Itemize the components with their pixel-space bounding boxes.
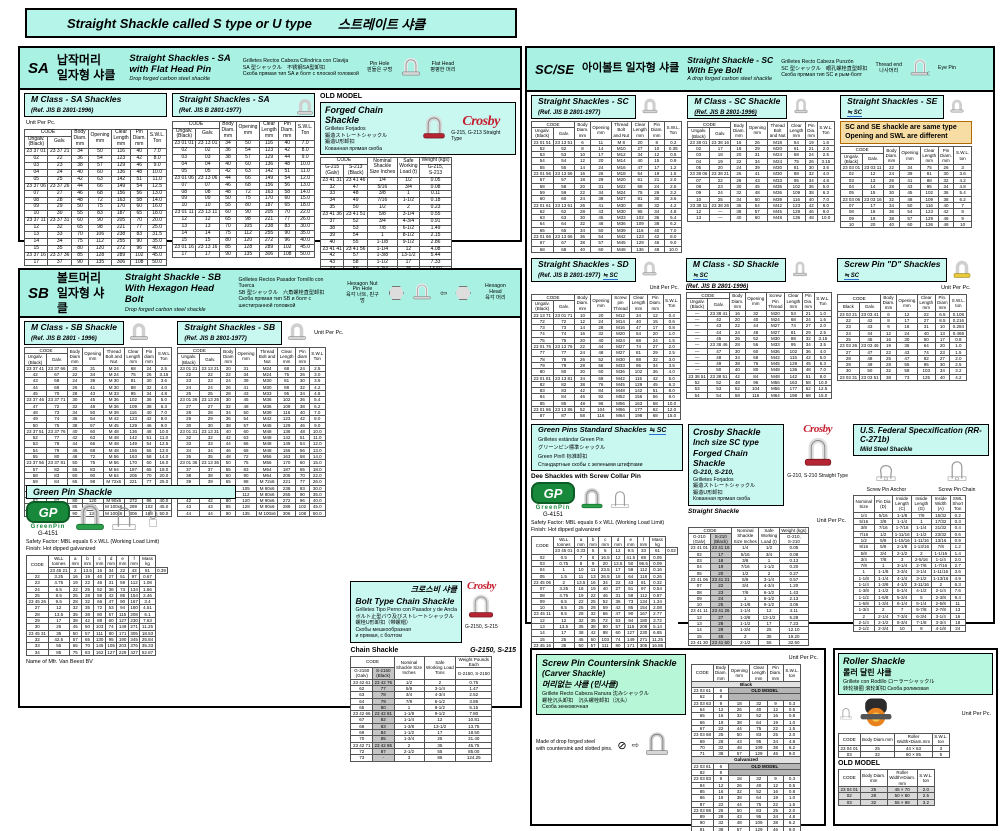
sa-mclass-column: M Class - SA Shackles(Ref. JIS B 2801-19… <box>24 93 167 266</box>
sd-column: Straight Shackles - SD(Ref. JIS B 2801-1… <box>531 258 681 420</box>
green-pin-safety-text: Safety Factor: MBL equals 6 x WLL (Worki… <box>26 539 236 553</box>
sb-unit-label: Unit Per Pc. <box>314 330 343 336</box>
roller-shackle-photo-icon <box>859 697 893 731</box>
sb-hexnut-label: Hexagon Nut Pin Hole 육각 너트, 핀구멍 <box>344 282 380 305</box>
page-banner: Straight Shackle called S type or U type… <box>25 8 517 38</box>
green-pins-column: Green Pins Standard Shackles ≒ SCGrillet… <box>531 424 683 671</box>
sa-forged-caption: G-215, G-213 Straight Type <box>451 130 511 142</box>
screw-d-table: CODEBody Diam. mmOpening mmClear Length … <box>837 294 972 381</box>
se-table: CODEBody Diam. mmOpening mmClear Length … <box>840 146 972 228</box>
roller-old-table: CODEBody Diam. mmRoller Width×Diam. mmS.… <box>838 769 993 806</box>
fed-titlebox: U.S. Federal Specxification (RR-C-271b)M… <box>853 424 989 456</box>
fed-column: U.S. Federal Specxification (RR-C-271b)M… <box>853 424 989 633</box>
sb-straight-titlebox: Straight Shackles - SB(Ref. JIS B 2801-1… <box>177 321 282 345</box>
screw-d-titlebox: Screw Pin "D" Shackles≒ SC <box>837 258 947 282</box>
sd-shackle-icon <box>641 259 658 280</box>
fed-cap2: Screw Pin Chain <box>938 487 975 493</box>
hexagon-nut-icon <box>389 286 404 300</box>
roller-old-label: OLD MODEL <box>838 760 993 767</box>
sc-thread-label: Thread end 나사머리 <box>876 63 903 74</box>
hexagon-head-icon <box>455 286 470 300</box>
anchor-shackle-drawing-icon <box>873 458 899 486</box>
fed-cap1: Screw Pin Anchor <box>867 487 906 493</box>
countersink-titlebox: Screw Pin Countersink Shackle (Carver Sh… <box>536 654 686 715</box>
roller-shackle-small-icon <box>838 705 854 723</box>
green-pin-shackle-titlebox: Green Pin Shackle <box>26 485 236 499</box>
sa-unit-label: Unit Per Pc. <box>26 120 165 126</box>
sb-header-band: SB 볼트머리 일자형 샤클 Straight Shackle - SB Wit… <box>20 270 520 318</box>
chain-shackle-code: G-2150, S-215 <box>470 647 516 654</box>
green-pin-table: CODEWLL tonnesa mmb mmc mmd mme mmf mmMa… <box>26 555 236 656</box>
sd-titlebox: Straight Shackles - SD(Ref. JIS B 2801-1… <box>531 258 636 282</box>
sb-multilang: Grilletes Rectos Pasador Tornillo con Tu… <box>238 277 336 310</box>
sa-shackle-icon <box>400 55 422 81</box>
screw-d-shackle-icon <box>952 258 972 282</box>
bolt-type-column: 크로스비 샤클 Bolt Type Chain Shackle Grillete… <box>350 321 516 762</box>
sa-flathead-label: Flat Head 평평한 머리 <box>430 62 455 73</box>
countersink-table: CODEBody Diam. mmOpening mmClear Length … <box>691 664 820 831</box>
sa-mclass-table: CODEBody Diam. mmOpening mmClear Length … <box>24 129 167 267</box>
sd-mclass-ref: (Ref. JIS B 2801-1996) <box>686 284 832 290</box>
g210-table: CODENominal Shackle Size InchesSafe Work… <box>688 527 848 647</box>
roller-titlebox: Roller Shackle 롤러 달린 샤클 Grillete con Rod… <box>838 653 993 695</box>
sb-panel: SB 볼트머리 일자형 샤클 Straight Shackle - SB Wit… <box>18 268 522 708</box>
sa-title-ko: 납작머리 일자형 샤클 <box>57 53 116 83</box>
sc-panel: SC/SE 아이볼트 일자형 샤클 Straight Shackle - SC … <box>525 46 995 624</box>
sb-shackle-icon <box>412 281 432 305</box>
g210-unit: Unit Per Pc. <box>817 518 846 524</box>
sd-mclass-table: CODEBody Diam. mmOpening mmScrew Pin Thr… <box>686 292 832 399</box>
green-pin-logo-2: GP <box>26 501 70 523</box>
countersink-table-column: Unit Per Pc. CODEBody Diam. mmOpening mm… <box>691 654 820 831</box>
sc-mclass-table: CODEBody Diam. mmOpening mmThread Bolt a… <box>687 121 835 222</box>
sb-hexhead-label: Hexagon Head 육각 머리 <box>479 284 512 301</box>
sb-title-ko: 볼트머리 일자형 샤클 <box>57 271 113 316</box>
sc-title-ko: 아이볼트 일자형 샤클 <box>582 62 679 76</box>
sc-title-en: Straight Shackle - SC With Eye Bolt <box>687 56 773 76</box>
sb-mclass-titlebox: M Class - SB Shackle(Ref. JIS B 2801 - 1… <box>24 321 124 345</box>
sa-header-band: SA 납작머리 일자형 샤클 Straight Shackles - SA wi… <box>20 48 520 90</box>
crosby-logo: Crosby <box>462 115 499 129</box>
sd-unit-label: Unit Per Pc. <box>533 285 679 291</box>
sd-mclass-column: M Class - SD Shackle≒ SC (Ref. JIS B 280… <box>686 258 832 399</box>
sc-straight-table: CODEBody Diam. mmOpening mmThread Bolt a… <box>531 121 682 253</box>
roller-panel: Roller Shackle 롤러 달린 샤클 Grillete con Rod… <box>833 648 998 826</box>
no-head-icon: ⊘ <box>617 739 626 752</box>
se-shackle-icon <box>949 97 965 117</box>
crosby-logo-2: Crosby <box>803 424 832 435</box>
sc-code: SC/SE <box>535 62 574 77</box>
sa-forged-titlebox: Forged Chain Shackle Grilletes Forjados … <box>320 102 516 155</box>
se-titlebox: Straight Shackles - SE≒ SC <box>840 95 944 119</box>
sa-forged-table: CODENominal Shackle Size InchesSafe Work… <box>320 157 516 281</box>
sb-title-en: Straight Shackle - SB With Hexagon Head … <box>125 273 231 306</box>
sc-straight-column: Straight Shackles - SC(Ref. JIS B 2801-1… <box>531 95 682 253</box>
dee-shackles-label: Dee Shackles with Screw Collar Pin <box>531 473 683 480</box>
green-pins-titlebox: Green Pins Standard Shackles ≒ SCGrillet… <box>531 424 683 472</box>
sd-table: CODEBody Diam. mmOpening mmScrew pin Thr… <box>531 294 681 420</box>
crosby-titlebox: Crosby Shackle Inch size SC type Forged … <box>688 424 784 506</box>
dee-drawing-icon <box>609 486 631 514</box>
chain-shackle-drawing-icon <box>945 458 969 486</box>
sa-straight-column: Straight Shackles - SA(Ref. JIS B 2801-1… <box>172 93 315 258</box>
crosby-logo-3: Crosby <box>467 581 496 592</box>
sc-multilang: Grilletes Recto Cabeza Punzón SC 型シャックル … <box>781 59 867 79</box>
screw-d-unit-label: Unit Per Pc. <box>839 285 970 291</box>
green-pin-shackle-icon <box>580 486 604 514</box>
banner-title-ko: 스트레이트 샤클 <box>338 14 425 33</box>
chain-shackle-table: CODENominal Shackle Size InchesSafe Work… <box>350 656 516 762</box>
green-pin-mfr: Name of Mfr. Van Beest BV <box>26 659 236 665</box>
countersink-panel: Screw Pin Countersink Shackle (Carver Sh… <box>530 648 826 826</box>
shackle-drawing-front-icon <box>110 501 138 537</box>
straight-shackle-title: Straight Shackle <box>688 508 848 515</box>
crosby-column: Crosby Shackle Inch size SC type Forged … <box>688 424 848 665</box>
green-pin-shackle-icon-2 <box>75 501 105 537</box>
crosby-shackle-icon <box>803 436 833 472</box>
sa-straight-table: CODEBody Diam. mmOpening mmClear Length … <box>172 121 315 259</box>
g4151-label: G-4151 <box>543 512 563 518</box>
screw-d-column: Screw Pin "D" Shackles≒ SC Unit Per Pc. … <box>837 258 972 381</box>
roller-unit: Unit Per Pc. <box>900 711 991 717</box>
fed-table: Nominal SizePin Dia (D)Inside Length (C)… <box>853 495 989 633</box>
green-pin-shackle-block: Green Pin Shackle GP GreenPin G-4151 Saf… <box>26 485 236 665</box>
sa-subtitle: Drop forged carbon steel shackle <box>129 76 230 82</box>
se-note-box: SC and SE shackle are same type Opening … <box>840 121 972 145</box>
chain-shackle-title: Chain Shackle <box>350 647 398 654</box>
sb-code: SB <box>28 285 49 302</box>
countersink-shackle-icon <box>644 731 670 761</box>
countersink-note: Made of drop forged steel with countersi… <box>536 739 612 752</box>
sa-code: SA <box>28 60 49 77</box>
sc-mclass-shackle-icon <box>792 95 810 119</box>
sa-straight-shackle-icon <box>295 97 315 119</box>
arrow-icon-2: ⇨ <box>632 740 640 751</box>
sa-multilang: Grilletes Rectos Cabeza Cilindrica con C… <box>243 58 359 78</box>
arrow-icon: ⇦ <box>440 288 448 299</box>
countersink-info-column: Screw Pin Countersink Shackle (Carver Sh… <box>536 654 686 761</box>
sc-straight-shackle-icon <box>641 96 659 118</box>
green-pins-table: CODEWLL tonnesa mmb mmc mmd mme mmf mmMa… <box>531 536 683 662</box>
bolt-type-shackle-icon <box>468 593 494 623</box>
se-column: Straight Shackles - SE≒ SC SC and SE sha… <box>840 95 972 228</box>
sa-panel: SA 납작머리 일자형 샤클 Straight Shackles - SA wi… <box>18 46 522 242</box>
sc-straight-titlebox: Straight Shackles - SC(Ref. JIS B 2801-1… <box>531 95 636 119</box>
sc-mclass-column: M Class - SC Shackle(Ref. JIS B 2801-199… <box>687 95 835 222</box>
sc-eyepin-label: Eye Pin <box>938 66 956 72</box>
crosby-caption: G-210, S-210 Straight Type <box>787 473 848 479</box>
sc-mclass-titlebox: M Class - SC Shackle(Ref. JIS B 2801-199… <box>687 95 787 119</box>
sd-mclass-shackle-icon <box>791 258 809 282</box>
sa-pinhole-label: Pin Hole 핀들은 구멍 <box>367 62 392 73</box>
sb-straight-shackle-icon <box>287 321 307 345</box>
sa-old-model-label: OLD MODEL <box>320 93 516 100</box>
countersink-unit: Unit Per Pc. <box>789 655 818 661</box>
bolt-type-caption: G-2150, S-215 <box>465 624 498 630</box>
sa-title-en: Straight Shackles - SA with Flat Head Pi… <box>129 54 230 76</box>
sa-straight-titlebox: Straight Shackles - SA(Ref. JIS B 2801-1… <box>172 93 315 117</box>
bolt-type-titlebox: 크로스비 샤클 Bolt Type Chain Shackle Grillete… <box>350 581 462 643</box>
sc-subtitle: A drop forged carbon steel shackle <box>687 76 773 82</box>
sb-mclass-shackle-icon <box>129 321 149 345</box>
roller-table: CODEBody Diam.mmRoller Width×Diam.mmS.W.… <box>838 733 993 758</box>
sc-shackle-icon <box>910 57 930 81</box>
sd-mclass-titlebox: M Class - SD Shackle≒ SC <box>686 258 786 282</box>
sa-forged-column: OLD MODEL Forged Chain Shackle Grilletes… <box>320 93 516 290</box>
sc-header-band: SC/SE 아이볼트 일자형 샤클 Straight Shackle - SC … <box>527 48 993 92</box>
green-safety-text: Safety Factor: MBL equals 6 x WLL (Worki… <box>531 520 683 534</box>
shackle-drawing-side-icon <box>143 501 163 537</box>
sa-mclass-titlebox: M Class - SA Shackles(Ref. JIS B 2801-19… <box>24 93 167 117</box>
g4151-label-2: G-4151 <box>38 531 58 537</box>
sb-subtitle: Drop forged carbon steel shackle <box>125 307 231 313</box>
forged-shackle-icon <box>421 114 447 144</box>
banner-title-en: Straight Shackle called S type or U type <box>67 16 312 31</box>
sa-forged-lines: Grilletes Forjados 鍛造ストレートシャックル 鍛造U形卸扣 К… <box>325 126 417 152</box>
green-pin-logo: GP <box>531 482 575 504</box>
sa-forged-title: Forged Chain Shackle <box>325 105 417 125</box>
